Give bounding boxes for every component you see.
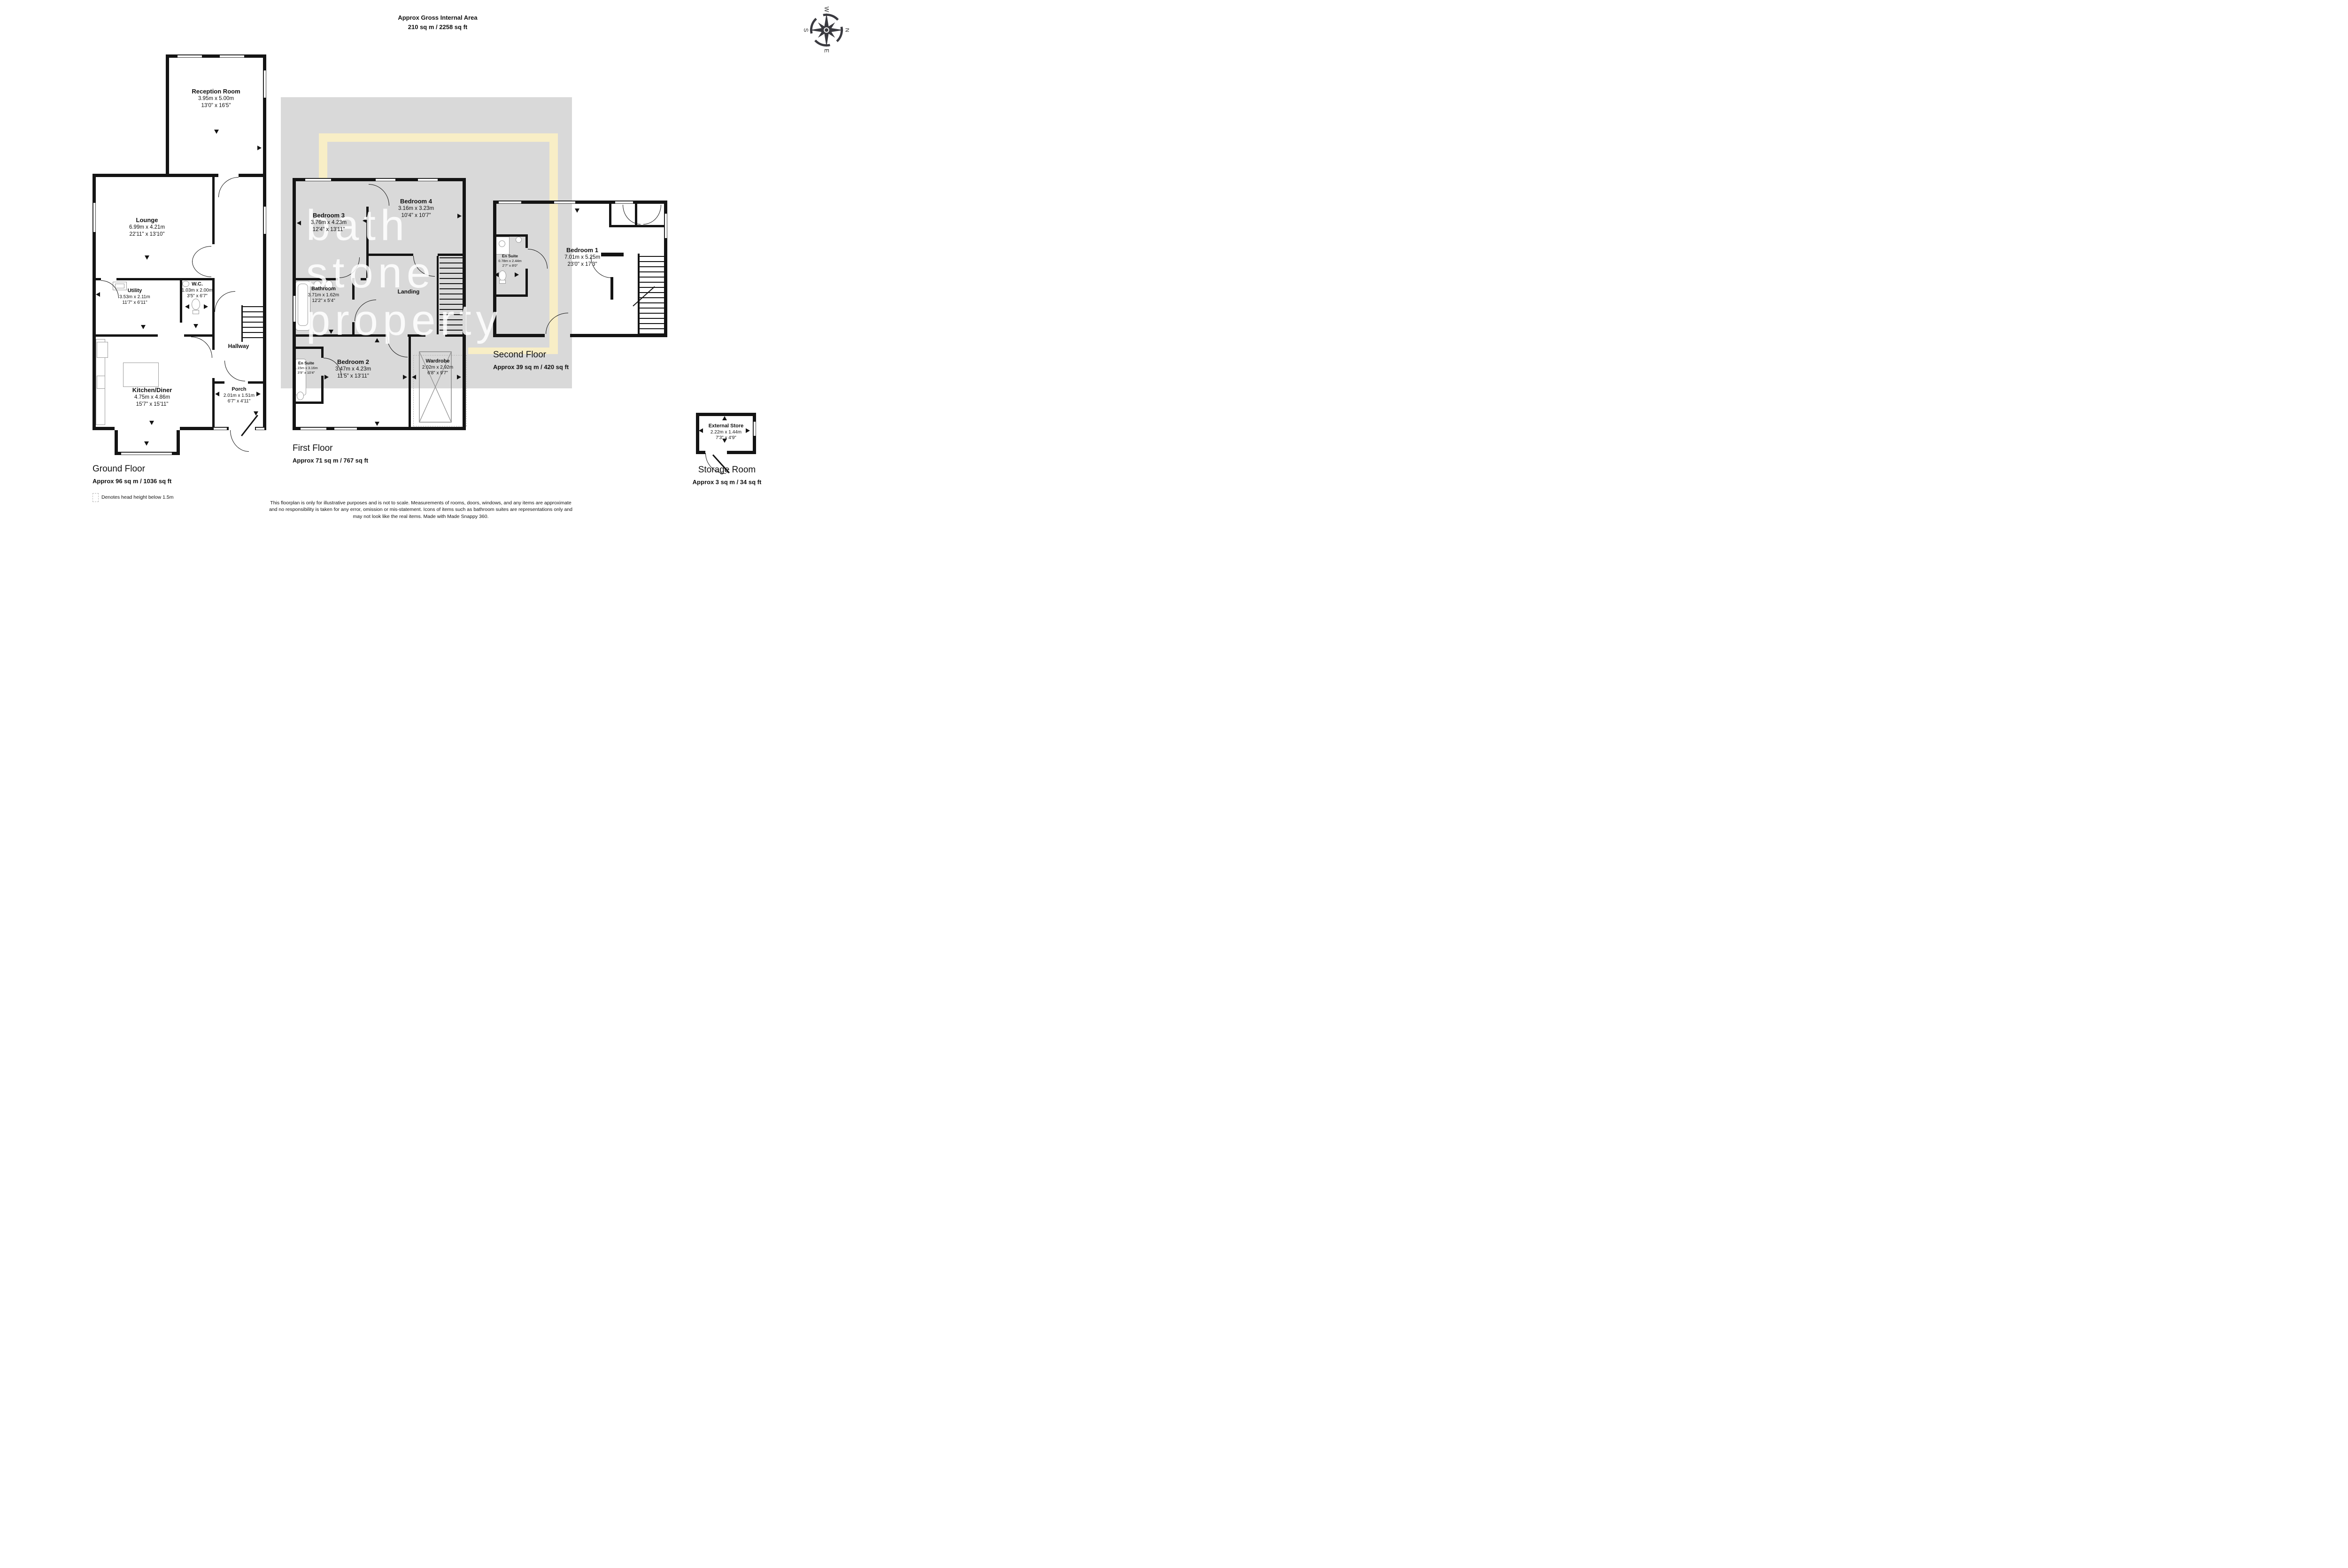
stairs — [640, 256, 664, 334]
highlight-rect-left — [319, 142, 327, 178]
sink-icon — [516, 237, 522, 243]
room-dim-imperial: 3'5" x 6'7" — [182, 294, 213, 300]
room-name: Bathroom — [308, 286, 339, 293]
window — [121, 452, 172, 455]
dimension-arrow — [699, 428, 703, 433]
dimension-arrow — [215, 392, 219, 396]
dimension-arrow — [324, 375, 329, 379]
disclaimer: This floorplan is only for illustrative … — [0, 500, 842, 520]
door-arc — [218, 177, 239, 197]
floor-title: Second Floor — [493, 350, 569, 360]
room-name: En Suite — [498, 254, 522, 259]
wall — [212, 177, 215, 244]
room-dim-metric: 3.47m x 4.23m — [335, 366, 371, 373]
wall — [184, 334, 212, 337]
wall — [293, 402, 321, 404]
dimension-arrow — [185, 304, 189, 309]
room-dim-imperial: 6'7" x 4'11" — [224, 399, 255, 405]
wall — [321, 376, 324, 404]
dimension-arrow — [412, 375, 416, 379]
window — [178, 55, 202, 58]
storage-room-title: Storage Room Approx 3 sq m / 34 sq ft — [685, 465, 769, 486]
wall — [525, 234, 528, 248]
floor-area: Approx 96 sq m / 1036 sq ft — [93, 478, 171, 485]
wall — [321, 347, 324, 358]
window — [753, 422, 756, 436]
room-name: Wardrobe — [422, 358, 453, 365]
wall — [116, 278, 212, 280]
window — [305, 178, 331, 181]
room-dim-imperial: 11'7" x 6'11" — [119, 300, 150, 306]
dimension-arrow — [96, 292, 100, 297]
hob-icon — [97, 342, 108, 358]
highlight-rect-top — [319, 133, 558, 142]
wall — [409, 334, 411, 427]
wall — [180, 427, 212, 430]
room-dim-metric: 2.02m x 2.92m — [422, 365, 453, 371]
toilet-icon — [297, 392, 304, 400]
wall — [525, 269, 528, 297]
window — [263, 70, 266, 98]
floorplan-canvas: Approx Gross Internal Area 210 sq m / 22… — [0, 0, 842, 523]
room-name: External Store — [709, 423, 744, 430]
window — [418, 178, 438, 181]
room-dim-metric: 3.76m x 4.23m — [311, 219, 347, 226]
room-label-ensuite-second: En Suite 0.78m x 2.44m 2'7" x 8'0" — [498, 254, 522, 268]
disclaimer-line: may not look like the real items. Made w… — [0, 513, 842, 520]
wall — [570, 334, 667, 337]
floor-title: Storage Room — [685, 465, 769, 475]
dimension-arrow — [515, 272, 519, 277]
floor-title: Ground Floor — [93, 464, 171, 474]
ground-floor-title: Ground Floor Approx 96 sq m / 1036 sq ft — [93, 464, 171, 485]
window — [334, 427, 357, 430]
room-dim-metric: 2.22m x 1.44m — [709, 430, 744, 436]
floor-area: Approx 71 sq m / 767 sq ft — [293, 457, 368, 464]
room-dim-imperial: 3'9" x 10'4" — [294, 371, 318, 375]
header-subtitle: 210 sq m / 2258 sq ft — [398, 23, 477, 32]
room-label-bedroom4: Bedroom 4 3.16m x 3.23m 10'4" x 10'7" — [398, 197, 434, 219]
room-name: Reception Room — [192, 87, 240, 95]
window — [664, 214, 667, 238]
wall — [610, 277, 613, 300]
room-dim-imperial: 12'4" x 13'11" — [311, 226, 347, 233]
toilet-icon — [192, 299, 200, 310]
dimension-arrow — [722, 416, 727, 420]
wall — [239, 174, 266, 177]
disclaimer-line: and no responsibility is taken for any e… — [0, 506, 842, 513]
window — [376, 178, 395, 181]
wall — [212, 378, 215, 430]
room-label-bathroom: Bathroom 3.71m x 1.62m 12'2" x 5'4" — [308, 286, 339, 304]
header-title: Approx Gross Internal Area — [398, 13, 477, 23]
room-label-lounge: Lounge 6.99m x 4.21m 22'11" x 13'10" — [129, 216, 165, 238]
room-name: Lounge — [129, 216, 165, 224]
dimension-arrow — [297, 221, 301, 225]
wall — [248, 381, 266, 384]
room-dim-metric: 4.75m x 4.86m — [132, 394, 172, 401]
window — [301, 427, 326, 430]
room-dim-imperial: 22'11" x 13'10" — [129, 231, 165, 238]
wall — [638, 254, 640, 334]
floor-title: First Floor — [293, 443, 368, 454]
door-arc — [224, 361, 245, 381]
wall — [93, 334, 158, 337]
room-dim-imperial: 13'0" x 16'5" — [192, 102, 240, 109]
wall — [601, 253, 624, 256]
dimension-arrow — [257, 146, 262, 150]
room-label-bedroom3: Bedroom 3 3.76m x 4.23m 12'4" x 13'11" — [311, 211, 347, 233]
toilet-icon — [193, 310, 199, 314]
room-name: Bedroom 3 — [311, 211, 347, 219]
dimension-arrow — [256, 392, 261, 396]
room-dim-metric: 7.01m x 5.25m — [564, 254, 600, 261]
room-label-kitchen: Kitchen/Diner 4.75m x 4.86m 15'7" x 15'1… — [132, 386, 172, 408]
wall — [727, 451, 756, 454]
door-arc — [230, 430, 249, 452]
dimension-arrow — [457, 375, 461, 379]
dimension-arrow — [214, 130, 219, 134]
room-label-reception: Reception Room 3.95m x 5.00m 13'0" x 16'… — [192, 87, 240, 109]
wall — [212, 381, 224, 384]
wall — [696, 413, 699, 454]
room-label-porch: Porch 2.01m x 1.51m 6'7" x 4'11" — [224, 386, 255, 405]
room-dim-imperial: 23'0" x 17'3" — [564, 261, 600, 268]
wall — [293, 347, 323, 349]
room-dim-metric: 3.71m x 1.62m — [308, 293, 339, 299]
room-dim-metric: 3.16m x 3.23m — [398, 205, 434, 212]
room-label-wardrobe: Wardrobe 2.02m x 2.92m 6'8" x 9'7" — [422, 358, 453, 377]
window — [615, 201, 633, 204]
room-dim-metric: 1.03m x 2.00m — [182, 288, 213, 294]
wall — [263, 54, 266, 430]
door-arc — [192, 246, 211, 262]
first-floor-title: First Floor Approx 71 sq m / 767 sq ft — [293, 443, 368, 464]
room-name: Porch — [224, 386, 255, 393]
room-dim-metric: 0.78m x 2.44m — [498, 259, 522, 263]
window — [263, 207, 266, 234]
room-label-ensuite-first: En Suite 1.15m x 3.16m 3'9" x 10'4" — [294, 361, 318, 375]
room-dim-imperial: 7'3" x 4'9" — [709, 435, 744, 441]
room-name: Utility — [119, 287, 150, 294]
dimension-arrow — [746, 428, 750, 433]
window — [554, 201, 575, 204]
gross-internal-area-header: Approx Gross Internal Area 210 sq m / 22… — [398, 13, 477, 31]
dimension-arrow — [193, 324, 198, 328]
room-name: W.C. — [182, 281, 213, 288]
window — [214, 427, 227, 430]
door-arc — [215, 291, 235, 312]
room-dim-imperial: 6'8" x 9'7" — [422, 371, 453, 377]
wall — [609, 201, 611, 227]
room-label-landing: Landing — [398, 288, 420, 296]
dimension-arrow — [144, 441, 149, 446]
room-dim-metric: 3.53m x 2.11m — [119, 294, 150, 301]
floor-area: Approx 39 sq m / 420 sq ft — [493, 363, 569, 371]
disclaimer-line: This floorplan is only for illustrative … — [0, 500, 842, 506]
dimension-arrow — [403, 375, 407, 379]
room-name: Kitchen/Diner — [132, 386, 172, 394]
room-label-bedroom1: Bedroom 1 7.01m x 5.25m 23'0" x 17'3" — [564, 246, 600, 268]
wall — [696, 413, 756, 416]
room-name: En Suite — [294, 361, 318, 366]
wall — [241, 305, 243, 342]
compass-icon: N E S W — [804, 6, 849, 54]
room-label-hallway: Hallway — [228, 343, 249, 350]
dimension-arrow — [575, 209, 579, 213]
door-arc — [191, 337, 212, 358]
window — [293, 296, 296, 322]
room-dim-imperial: 10'4" x 10'7" — [398, 212, 434, 219]
room-label-wc: W.C. 1.03m x 2.00m 3'5" x 6'7" — [182, 281, 213, 300]
compass-east-label: E — [823, 49, 830, 53]
room-dim-metric: 6.99m x 4.21m — [129, 224, 165, 231]
window — [93, 203, 96, 232]
dimension-arrow — [254, 411, 258, 416]
wall — [696, 451, 705, 454]
second-floor-title: Second Floor Approx 39 sq m / 420 sq ft — [493, 350, 569, 371]
room-dim-imperial: 12'2" x 5'4" — [308, 298, 339, 304]
wall — [93, 427, 115, 430]
room-label-bedroom2: Bedroom 2 3.47m x 4.23m 11'5" x 13'11" — [335, 358, 371, 380]
floor-area: Approx 3 sq m / 34 sq ft — [685, 479, 769, 486]
room-name: Hallway — [228, 343, 249, 350]
room-dim-imperial: 2'7" x 8'0" — [498, 263, 522, 268]
room-name: Landing — [398, 288, 420, 296]
room-dim-metric: 2.01m x 1.51m — [224, 393, 255, 399]
compass-west-label: W — [823, 7, 830, 12]
room-label-external-store: External Store 2.22m x 1.44m 7'3" x 4'9" — [709, 423, 744, 441]
room-dim-metric: 1.15m x 3.16m — [294, 366, 318, 371]
door-arc — [643, 205, 661, 224]
dimension-arrow — [149, 421, 154, 425]
window — [220, 55, 244, 58]
door-arc — [623, 205, 641, 224]
compass-south-label: S — [804, 28, 809, 32]
window — [256, 427, 264, 430]
wall — [93, 278, 101, 280]
wall — [609, 225, 667, 227]
island-icon — [123, 363, 159, 387]
door-leaf — [241, 415, 258, 436]
room-dim-imperial: 15'7" x 15'11" — [132, 401, 172, 408]
stairs — [243, 306, 263, 341]
wall — [166, 54, 169, 177]
room-name: Bedroom 1 — [564, 246, 600, 254]
dimension-arrow — [375, 422, 379, 426]
room-label-utility: Utility 3.53m x 2.11m 11'7" x 6'11" — [119, 287, 150, 306]
room-name: Bedroom 2 — [335, 358, 371, 366]
sink-icon — [97, 376, 105, 389]
wall — [93, 174, 169, 177]
dimension-arrow — [141, 325, 146, 329]
wall — [166, 174, 218, 177]
room-dim-imperial: 11'5" x 13'11" — [335, 373, 371, 380]
door-arc — [192, 261, 211, 277]
dimension-arrow — [204, 304, 208, 309]
room-dim-metric: 3.95m x 5.00m — [192, 95, 240, 102]
room-name: Bedroom 4 — [398, 197, 434, 205]
compass-north-label: N — [844, 28, 849, 32]
dimension-arrow — [145, 255, 149, 260]
